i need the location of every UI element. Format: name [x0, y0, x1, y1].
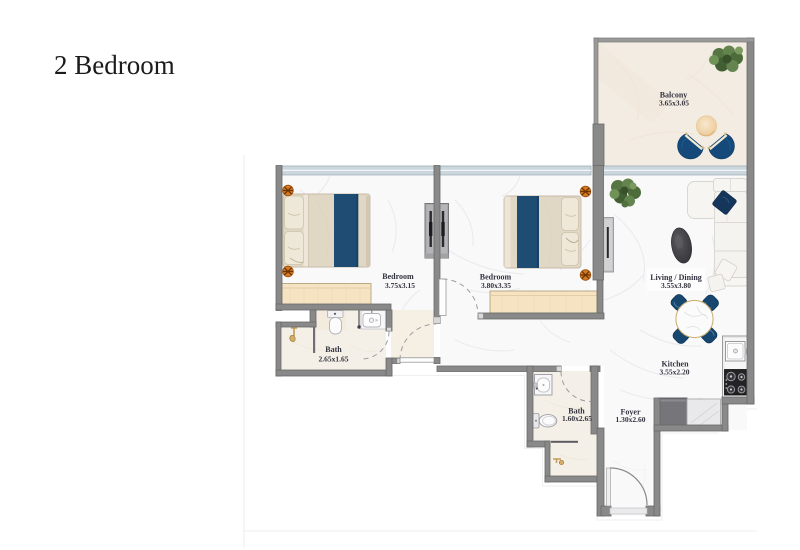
svg-text:1.60x2.65: 1.60x2.65: [562, 414, 592, 423]
svg-text:Bedroom: Bedroom: [382, 272, 414, 281]
svg-text:3.80x3.35: 3.80x3.35: [481, 281, 511, 290]
svg-text:2.65x1.65: 2.65x1.65: [319, 355, 349, 364]
svg-text:3.55x3.80: 3.55x3.80: [661, 281, 691, 290]
svg-text:2 Bedroom: 2 Bedroom: [54, 50, 175, 80]
svg-text:3.55x2.20: 3.55x2.20: [660, 368, 690, 377]
svg-text:3.75x3.15: 3.75x3.15: [385, 281, 415, 290]
svg-text:3.65x3.05: 3.65x3.05: [659, 99, 689, 108]
svg-text:1.30x2.60: 1.30x2.60: [616, 415, 646, 424]
svg-text:Bath: Bath: [325, 345, 342, 354]
